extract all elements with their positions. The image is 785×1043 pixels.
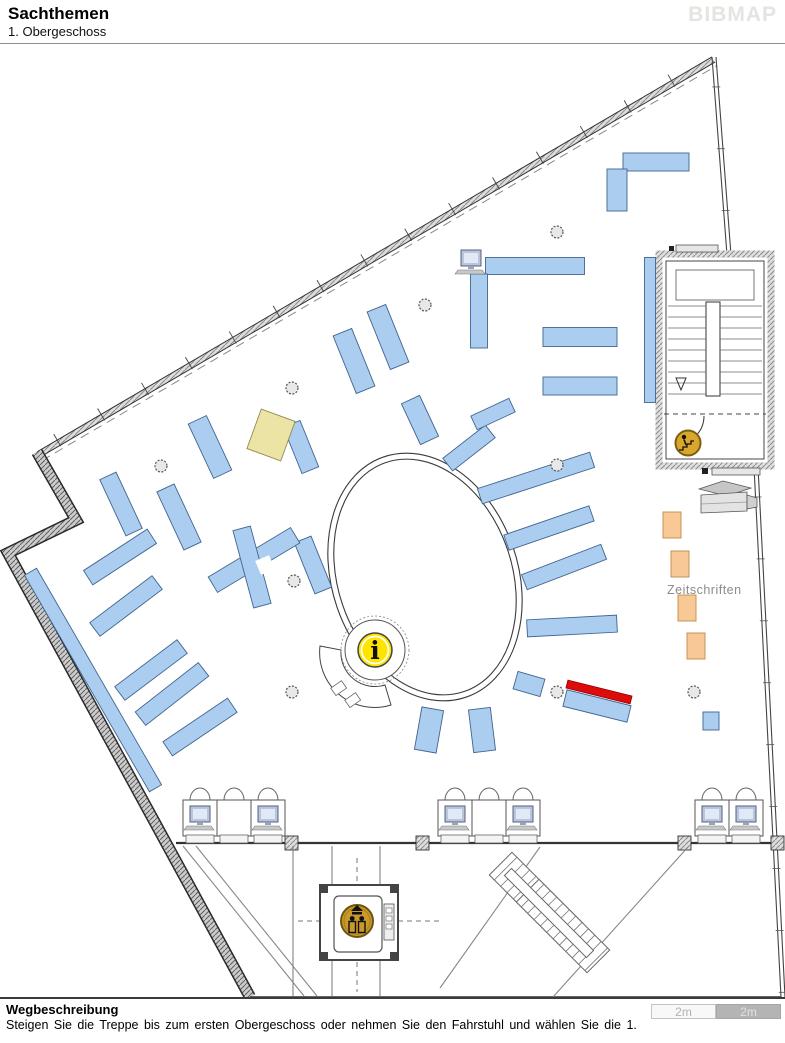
floor-subtitle: 1. Obergeschoss <box>8 24 785 39</box>
exterior-wall-ne <box>42 66 717 461</box>
chair <box>702 788 722 800</box>
shelf <box>468 707 495 752</box>
chair <box>190 788 210 800</box>
desk-base <box>698 835 726 843</box>
magazine-shelf <box>687 633 705 659</box>
chair <box>258 788 278 800</box>
computer-icon <box>455 270 485 274</box>
desk-base <box>475 835 503 843</box>
ledge <box>676 245 718 252</box>
wall-post <box>702 468 708 474</box>
header: Sachthemen 1. Obergeschoss BIBMAP <box>0 0 785 44</box>
computer-icon <box>468 266 474 269</box>
shelf <box>477 452 594 504</box>
wall-pillar <box>285 836 298 850</box>
computer-icon <box>193 809 207 819</box>
shelf <box>543 377 617 395</box>
computer-icon <box>464 253 478 263</box>
computer-icon <box>452 822 458 825</box>
shelf <box>90 576 163 637</box>
chair <box>736 788 756 800</box>
shelf <box>414 707 443 753</box>
scale-bar: 2m 2m <box>651 1004 781 1019</box>
info-icon-glyph: i <box>370 636 380 665</box>
shelf <box>703 712 719 730</box>
shelf <box>513 671 545 696</box>
elevator-corner <box>320 952 328 960</box>
column <box>155 460 167 472</box>
exterior-wall-right <box>754 467 781 997</box>
bibmap-logo: BIBMAP <box>688 3 777 27</box>
computer-icon <box>439 826 469 830</box>
computer-icon <box>520 822 526 825</box>
desk-base <box>509 835 537 843</box>
column <box>551 459 563 471</box>
computer-icon <box>197 822 203 825</box>
elevator-panel <box>386 908 392 913</box>
shelf <box>163 698 237 756</box>
shelf <box>333 329 375 394</box>
floor-plan-map: iZeitschriften <box>0 0 785 1043</box>
computer-icon <box>709 822 715 825</box>
computer-icon <box>739 809 753 819</box>
wall-pillar <box>416 836 429 850</box>
shelf <box>504 506 594 550</box>
column <box>288 575 300 587</box>
scale-segment-light: 2m <box>651 1004 716 1019</box>
elevator-corner <box>390 885 398 893</box>
column <box>551 226 563 238</box>
elevator-corner <box>390 952 398 960</box>
computer-icon <box>743 822 749 825</box>
column <box>286 382 298 394</box>
computer-icon <box>448 809 462 819</box>
computer-icon <box>184 826 214 830</box>
shelf <box>607 169 627 211</box>
magazine-shelf <box>663 512 681 538</box>
shelf <box>100 472 143 536</box>
desk-base <box>254 835 282 843</box>
column <box>551 686 563 698</box>
exterior-wall-ne <box>40 62 715 457</box>
elevator-panel <box>386 916 392 921</box>
wall-pillar <box>678 836 691 850</box>
magazine-shelf <box>671 551 689 577</box>
computer-icon <box>696 826 726 830</box>
chair <box>224 788 244 800</box>
directions-text: Steigen Sie die Treppe bis zum ersten Ob… <box>6 1018 779 1032</box>
scale-segment-dark: 2m <box>716 1004 781 1019</box>
directions-panel: 2m 2m Wegbeschreibung Steigen Sie die Tr… <box>0 997 785 1043</box>
shelf <box>471 398 515 429</box>
shelf <box>157 484 201 550</box>
chair <box>479 788 499 800</box>
shelf <box>623 153 689 171</box>
shelf <box>645 258 656 403</box>
shelf <box>294 536 331 594</box>
shelf <box>471 274 488 348</box>
elevator-icon <box>350 916 355 921</box>
shelf <box>367 305 409 370</box>
stair-stringer <box>504 868 593 957</box>
bibmap-page: iZeitschriften Sachthemen 1. Obergeschos… <box>0 0 785 1043</box>
desk-base <box>441 835 469 843</box>
column <box>286 686 298 698</box>
desk-base <box>220 835 248 843</box>
shelf <box>527 615 618 637</box>
chair <box>445 788 465 800</box>
elevator-icon <box>352 912 362 915</box>
computer-icon <box>265 822 271 825</box>
column <box>419 299 431 311</box>
desk-base <box>732 835 760 843</box>
computer-icon <box>252 826 282 830</box>
desk <box>217 800 251 836</box>
computer-icon <box>705 809 719 819</box>
computer-icon <box>730 826 760 830</box>
wall-post <box>669 246 674 251</box>
shelf <box>543 328 617 347</box>
wall-pillar <box>771 836 784 850</box>
computer-icon <box>261 809 275 819</box>
exterior-wall-right <box>758 467 785 997</box>
stairs-icon <box>676 431 701 456</box>
elevator-panel <box>386 924 392 929</box>
chair <box>513 788 533 800</box>
shelf <box>188 416 231 479</box>
shelf <box>401 395 438 444</box>
zeitschriften-label: Zeitschriften <box>667 583 742 597</box>
column <box>688 686 700 698</box>
shelf <box>443 425 495 471</box>
stair-divider <box>706 302 720 396</box>
ledge <box>712 468 760 475</box>
desk <box>472 800 506 836</box>
shelf <box>84 529 157 585</box>
computer-icon <box>516 809 530 819</box>
elevator-icon <box>359 916 364 921</box>
page-title: Sachthemen <box>8 4 785 23</box>
special-shelf <box>247 409 295 461</box>
shelf <box>486 258 585 275</box>
magazine-shelf <box>678 595 696 621</box>
elevator-corner <box>320 885 328 893</box>
computer-icon <box>507 826 537 830</box>
desk-base <box>186 835 214 843</box>
stairs-icon <box>682 435 686 439</box>
shelf <box>521 544 606 589</box>
